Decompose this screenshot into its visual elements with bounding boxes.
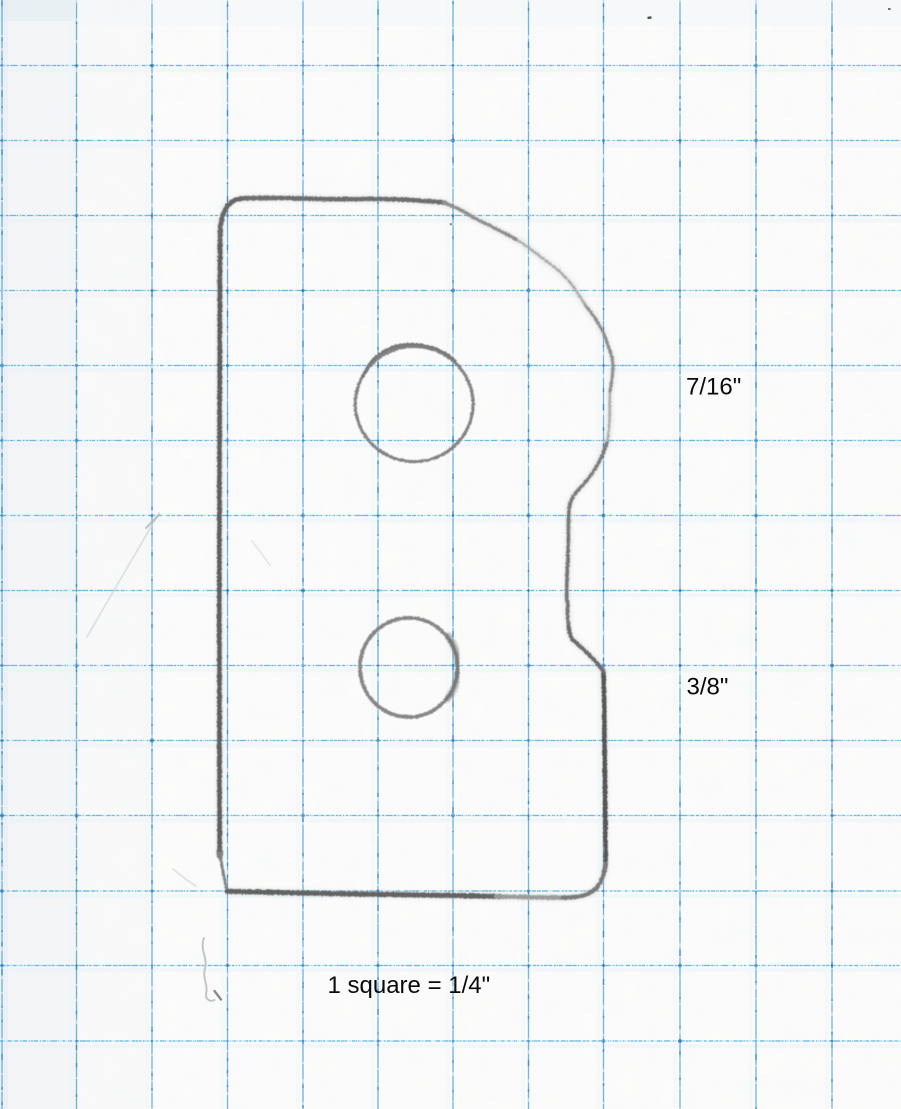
svg-text:1 square = 1/4": 1 square = 1/4"	[328, 972, 491, 999]
svg-text:3/8": 3/8"	[687, 674, 729, 701]
svg-text:7/16": 7/16"	[686, 373, 741, 400]
